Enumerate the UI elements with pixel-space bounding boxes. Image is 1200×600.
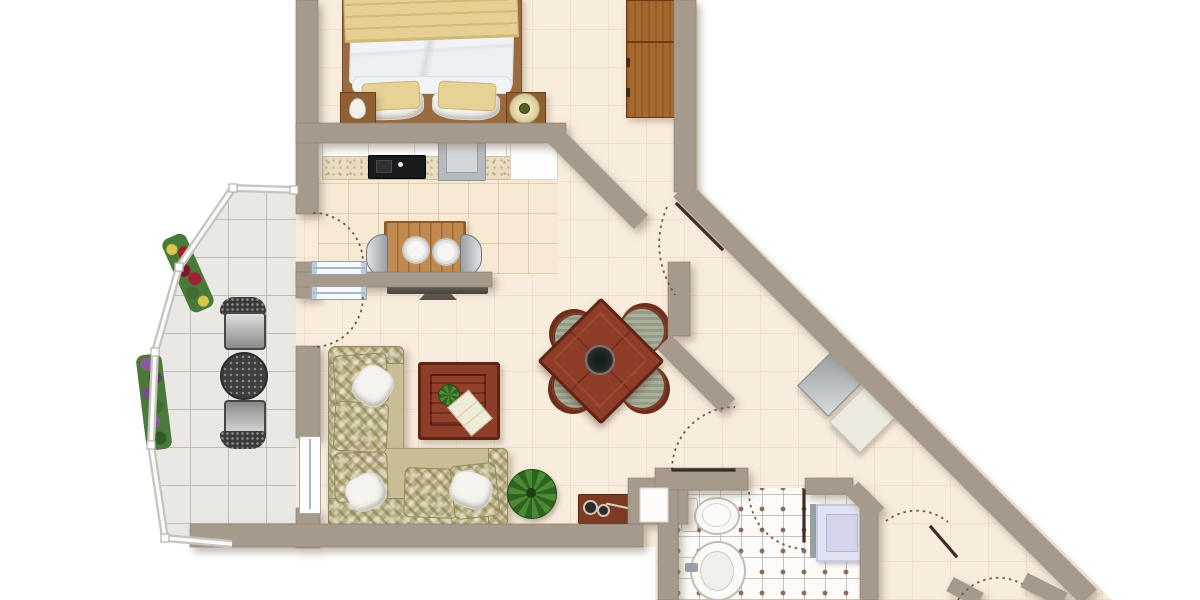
hall-living-door-arc <box>672 407 735 470</box>
bathroom-door-arc <box>749 492 806 549</box>
corridor-door-lower-arc <box>958 578 1022 600</box>
doors-layer <box>0 0 1200 600</box>
door-leaves <box>673 204 956 556</box>
balcony-door-living-arc <box>313 297 363 347</box>
bedroom-entry-leaf <box>677 204 722 249</box>
floor-plan <box>0 0 1200 600</box>
corridor-door-leaf <box>931 527 956 556</box>
bedroom-entry-arc <box>659 207 675 295</box>
corridor-door-arc <box>886 511 948 522</box>
balcony-door-kitchen-arc <box>313 213 363 263</box>
door-arcs <box>313 207 1022 600</box>
